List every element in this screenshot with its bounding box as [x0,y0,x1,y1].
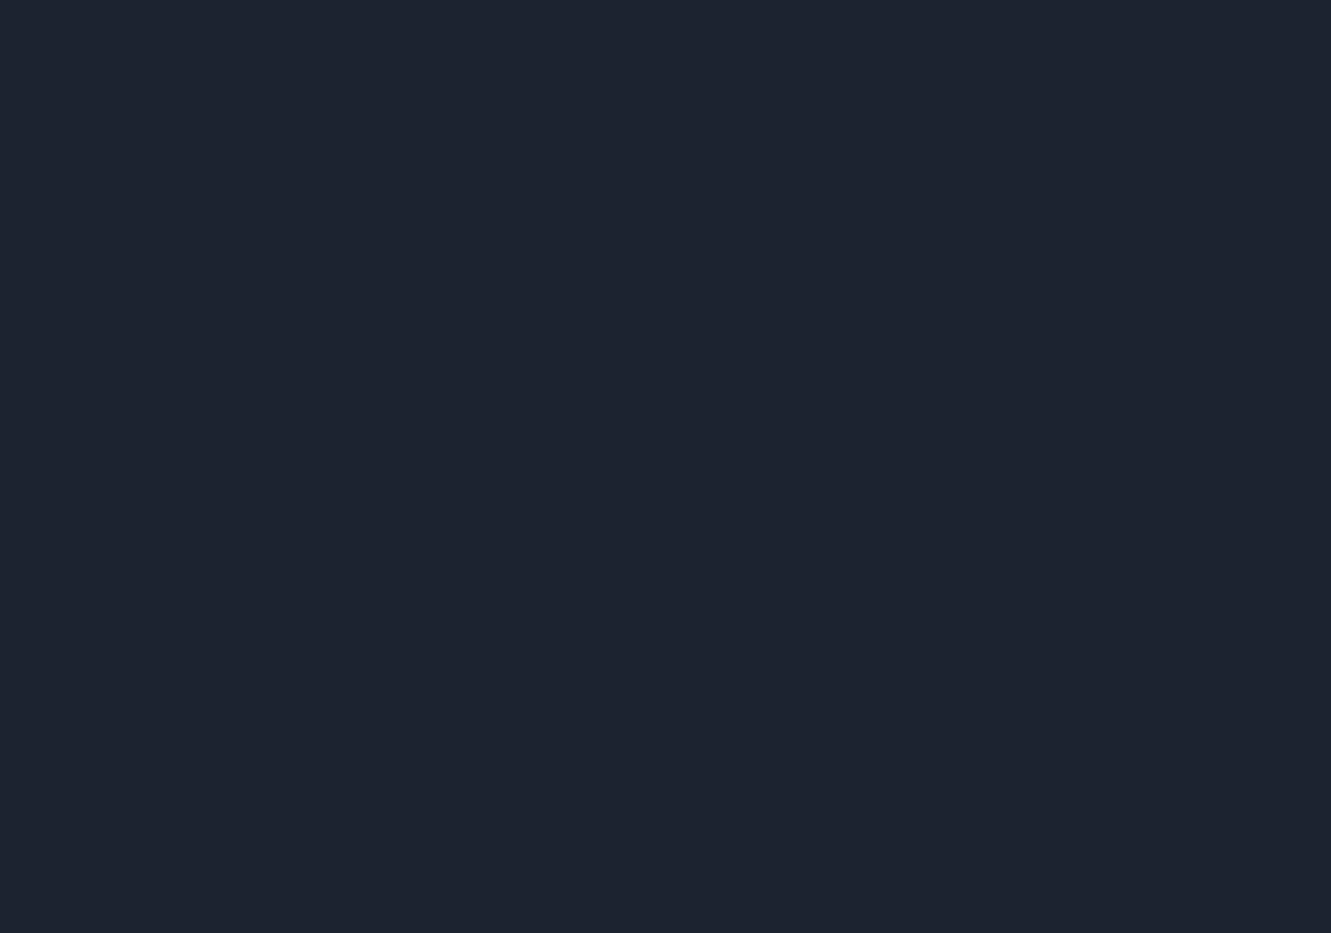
aerial-render [0,0,1331,933]
scene-canvas [0,0,1331,933]
